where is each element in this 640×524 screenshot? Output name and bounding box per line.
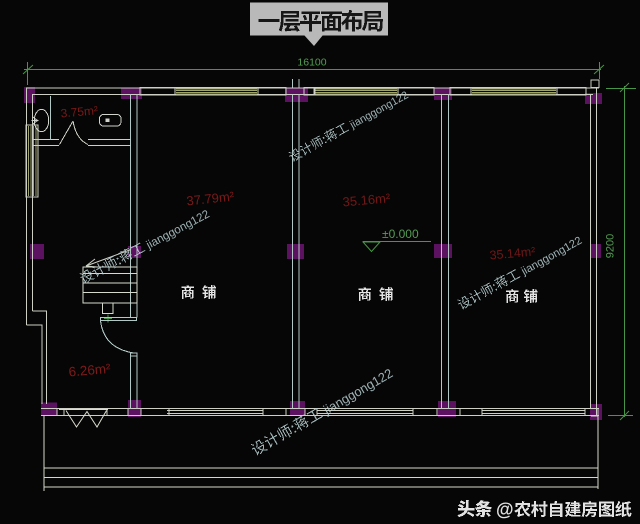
svg-text:@: @ — [496, 500, 514, 520]
svg-text:±0.000: ±0.000 — [382, 227, 419, 241]
svg-text:16100: 16100 — [297, 57, 326, 69]
svg-text:9200: 9200 — [605, 234, 617, 258]
